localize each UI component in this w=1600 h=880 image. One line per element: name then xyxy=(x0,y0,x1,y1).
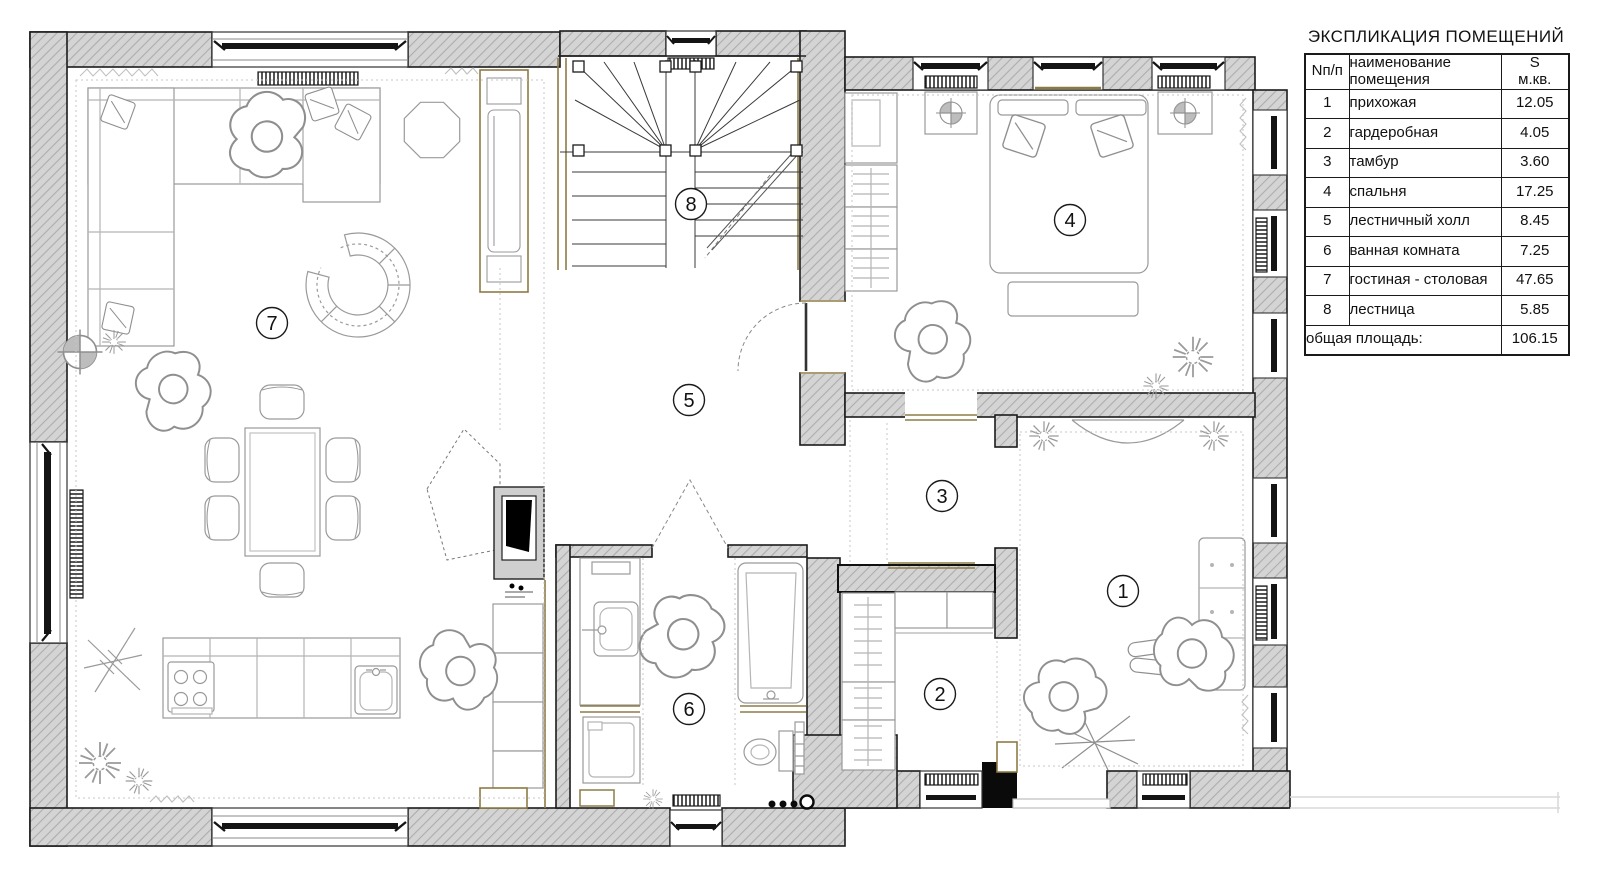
room-number-cell: 1 xyxy=(1305,89,1349,119)
legend-header-num: Nп/п xyxy=(1305,54,1349,89)
room-label-3: 3 xyxy=(927,481,958,512)
room-area-cell: 3.60 xyxy=(1501,148,1569,178)
svg-text:8: 8 xyxy=(685,194,696,216)
legend-total-row: общая площадь: 106.15 xyxy=(1305,325,1569,355)
legend-row: 6 ванная комната 7.25 xyxy=(1305,237,1569,267)
room-name-cell: тамбур xyxy=(1349,148,1501,178)
living-room-furniture xyxy=(84,86,460,718)
svg-text:4: 4 xyxy=(1064,210,1075,232)
svg-text:7: 7 xyxy=(266,313,277,335)
legend-row: 4 спальня 17.25 xyxy=(1305,178,1569,208)
room-label-6: 6 xyxy=(674,694,705,725)
room-name-cell: лестница xyxy=(1349,296,1501,326)
room-number-cell: 8 xyxy=(1305,296,1349,326)
room-area-cell: 8.45 xyxy=(1501,207,1569,237)
legend-header-area: S м.кв. xyxy=(1501,54,1569,89)
room-legend-table: Nп/п наименование помещения S м.кв. 1 пр… xyxy=(1304,53,1570,356)
room-name-cell: ванная комната xyxy=(1349,237,1501,267)
room-number-cell: 5 xyxy=(1305,207,1349,237)
total-area-value: 106.15 xyxy=(1501,325,1569,355)
room-area-cell: 47.65 xyxy=(1501,266,1569,296)
legend-row: 1 прихожая 12.05 xyxy=(1305,89,1569,119)
svg-text:3: 3 xyxy=(936,486,947,508)
room-name-cell: лестничный холл xyxy=(1349,207,1501,237)
room-area-cell: 7.25 xyxy=(1501,237,1569,267)
person-on-bench xyxy=(1127,618,1233,691)
room-label-7: 7 xyxy=(257,308,288,339)
legend-row: 5 лестничный холл 8.45 xyxy=(1305,207,1569,237)
room-name-cell: гостиная - столовая xyxy=(1349,266,1501,296)
room-number-cell: 7 xyxy=(1305,266,1349,296)
room-name-cell: гардеробная xyxy=(1349,119,1501,149)
hall-cabinet xyxy=(480,70,528,292)
room-label-8: 8 xyxy=(676,189,707,220)
room-area-cell: 17.25 xyxy=(1501,178,1569,208)
svg-text:6: 6 xyxy=(683,699,694,721)
room-number-cell: 4 xyxy=(1305,178,1349,208)
room-label-1: 1 xyxy=(1108,576,1139,607)
room-label-2: 2 xyxy=(925,679,956,710)
legend-row: 3 тамбур 3.60 xyxy=(1305,148,1569,178)
fireplace xyxy=(427,429,544,597)
legend-title: ЭКСПЛИКАЦИЯ ПОМЕЩЕНИЙ xyxy=(1294,27,1578,47)
staircase xyxy=(558,56,806,270)
svg-text:5: 5 xyxy=(683,390,694,412)
room-name-cell: прихожая xyxy=(1349,89,1501,119)
svg-text:1: 1 xyxy=(1117,581,1128,603)
legend-row: 7 гостиная - столовая 47.65 xyxy=(1305,266,1569,296)
room-label-4: 4 xyxy=(1055,205,1086,236)
room-label-5: 5 xyxy=(674,385,705,416)
room-number-cell: 3 xyxy=(1305,148,1349,178)
room-area-cell: 12.05 xyxy=(1501,89,1569,119)
legend-header-name: наименование помещения xyxy=(1349,54,1501,89)
svg-text:2: 2 xyxy=(934,684,945,706)
total-area-label: общая площадь: xyxy=(1305,325,1501,355)
floor-plan-page: 1 2 3 4 5 6 7 8 ЭКСПЛИКАЦИЯ ПОМЕЩЕНИЙ Nп… xyxy=(0,0,1600,880)
inner-wall-band xyxy=(838,565,995,592)
room-name-cell: спальня xyxy=(1349,178,1501,208)
bedroom-furniture xyxy=(845,92,1212,316)
room-area-cell: 4.05 xyxy=(1501,119,1569,149)
room-number-cell: 6 xyxy=(1305,237,1349,267)
room-area-cell: 5.85 xyxy=(1501,296,1569,326)
legend-header-row: Nп/п наименование помещения S м.кв. xyxy=(1305,54,1569,89)
room-number-cell: 2 xyxy=(1305,119,1349,149)
legend-row: 2 гардеробная 4.05 xyxy=(1305,119,1569,149)
legend-row: 8 лестница 5.85 xyxy=(1305,296,1569,326)
